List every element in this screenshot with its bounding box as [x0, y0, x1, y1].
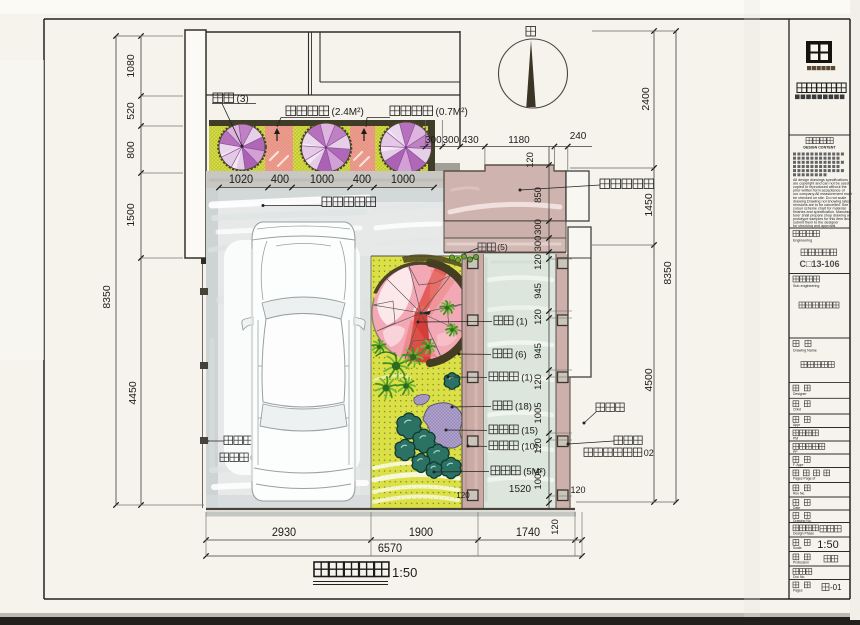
svg-text:Doc No.: Doc No. [793, 575, 805, 579]
svg-text:4450: 4450 [127, 381, 139, 405]
svg-text:DESIGN CONTENT: DESIGN CONTENT [803, 146, 836, 150]
svg-text:4500: 4500 [643, 368, 655, 392]
svg-text:Sub-engineering: Sub-engineering [793, 284, 819, 288]
svg-text:1900: 1900 [409, 527, 433, 539]
svg-text:(18): (18) [515, 401, 532, 412]
svg-text:120: 120 [456, 490, 470, 500]
svg-text:945: 945 [533, 343, 544, 359]
svg-text:120: 120 [533, 254, 544, 270]
svg-text:(10): (10) [521, 441, 538, 452]
svg-text:1080: 1080 [125, 54, 137, 78]
svg-text:120: 120 [533, 309, 544, 325]
svg-text:Scale: Scale [793, 546, 802, 550]
svg-text:1020: 1020 [229, 174, 253, 186]
svg-text:1740: 1740 [516, 527, 540, 539]
svg-text:Engineering: Engineering [793, 239, 812, 243]
svg-text:6570: 6570 [378, 543, 402, 555]
svg-text:8350: 8350 [662, 261, 674, 285]
svg-text:Pages Page of: Pages Page of [793, 477, 815, 481]
svg-text:120: 120 [533, 374, 544, 390]
svg-text:2930: 2930 [272, 527, 296, 539]
svg-text:02: 02 [644, 448, 654, 458]
svg-text:1000: 1000 [391, 174, 415, 186]
svg-text:(15): (15) [521, 425, 538, 436]
svg-text:(1): (1) [516, 316, 528, 327]
svg-text:1:50: 1:50 [817, 539, 838, 551]
svg-text:Appr: Appr [793, 423, 801, 427]
svg-text:300: 300 [533, 236, 544, 252]
svg-text:1:50: 1:50 [392, 565, 417, 580]
svg-text:Pages: Pages [793, 589, 803, 593]
svg-text:1450: 1450 [643, 193, 655, 217]
svg-text:1520: 1520 [509, 484, 531, 495]
svg-text:(1): (1) [521, 372, 533, 383]
svg-text:8350: 8350 [101, 285, 113, 309]
svg-text:1180: 1180 [508, 135, 530, 146]
svg-text:800: 800 [125, 141, 137, 159]
svg-text:120: 120 [550, 519, 561, 535]
svg-text:400: 400 [271, 174, 289, 186]
svg-text:520: 520 [125, 102, 137, 120]
svg-text:300: 300 [533, 219, 544, 235]
svg-text:(5): (5) [497, 242, 508, 252]
svg-text:F. Appr: F. Appr [793, 463, 804, 467]
svg-text:Profession: Profession [793, 561, 809, 565]
svg-text:Rev No.: Rev No. [793, 492, 805, 496]
svg-text:Design Phase: Design Phase [793, 532, 814, 536]
svg-text:1005: 1005 [533, 402, 544, 423]
svg-text:C□13-106: C□13-106 [800, 259, 840, 269]
svg-text:(6): (6) [515, 349, 527, 360]
svg-text:(0.7M²): (0.7M²) [436, 107, 468, 118]
svg-text:945: 945 [533, 283, 544, 299]
svg-text:120: 120 [525, 152, 536, 168]
svg-text:400: 400 [353, 174, 371, 186]
svg-text:Chkd: Chkd [793, 408, 801, 412]
svg-text:120: 120 [570, 485, 585, 495]
svg-text:2400: 2400 [640, 87, 652, 111]
svg-text:Drawing Name: Drawing Name [793, 349, 817, 353]
svg-text:(5M²): (5M²) [523, 466, 546, 477]
svg-text:Designer: Designer [793, 392, 807, 396]
svg-text:-01: -01 [830, 583, 842, 592]
svg-text:1500: 1500 [125, 203, 137, 227]
svg-text:430: 430 [462, 135, 479, 146]
svg-text:PM: PM [793, 437, 798, 441]
svg-text:(2.4M²): (2.4M²) [332, 107, 364, 118]
svg-text:1000: 1000 [310, 174, 334, 186]
svg-text:240: 240 [570, 131, 587, 142]
